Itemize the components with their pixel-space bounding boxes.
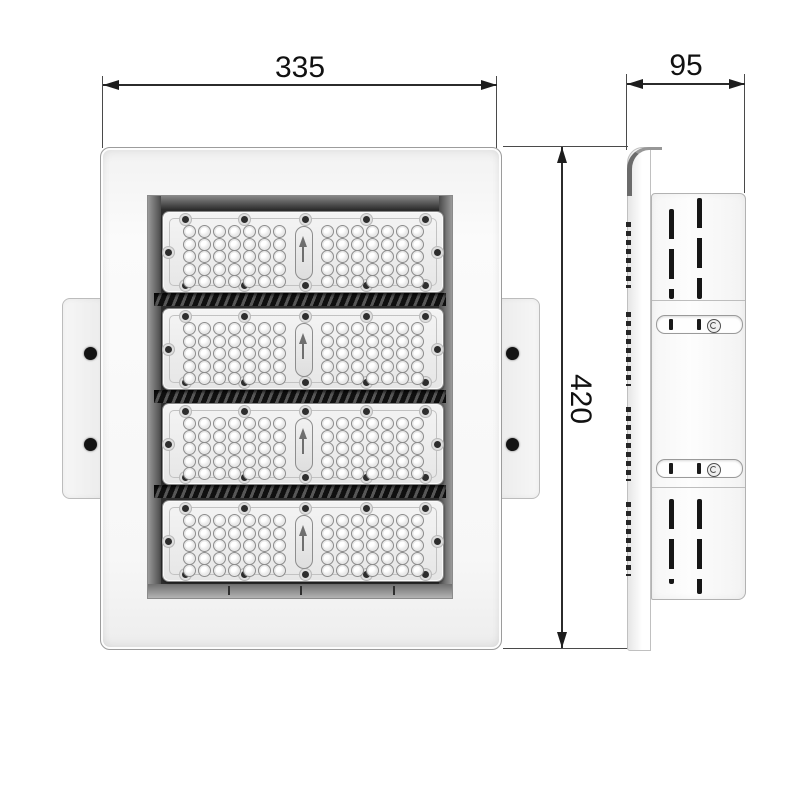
led-lens bbox=[321, 347, 334, 360]
led-lens bbox=[336, 514, 349, 527]
screw-icon bbox=[422, 505, 429, 512]
led-lens bbox=[411, 263, 424, 276]
led-lens bbox=[396, 263, 409, 276]
led-lens bbox=[396, 275, 409, 288]
led-lens bbox=[273, 564, 286, 577]
direction-capsule bbox=[295, 515, 313, 569]
led-lens bbox=[336, 347, 349, 360]
screw-icon bbox=[165, 441, 172, 448]
led-lens bbox=[228, 552, 241, 565]
led-array bbox=[183, 417, 288, 479]
led-lens bbox=[258, 238, 271, 251]
led-lens bbox=[258, 335, 271, 348]
led-lens bbox=[183, 539, 196, 552]
led-lens bbox=[183, 564, 196, 577]
led-lens bbox=[336, 564, 349, 577]
arrow-up-icon bbox=[302, 246, 304, 262]
screw-icon bbox=[422, 408, 429, 415]
led-lens bbox=[258, 552, 271, 565]
led-lens bbox=[213, 539, 226, 552]
side-frame-curve bbox=[627, 147, 662, 196]
extension-line bbox=[744, 74, 745, 193]
screw-icon bbox=[707, 319, 721, 333]
led-lens bbox=[321, 372, 334, 385]
led-lens bbox=[396, 467, 409, 480]
led-lens bbox=[366, 347, 379, 360]
screw-icon bbox=[241, 216, 248, 223]
led-lens bbox=[321, 539, 334, 552]
mount-tab-left bbox=[62, 298, 104, 499]
led-lens bbox=[243, 360, 256, 373]
module-edge-fins bbox=[626, 312, 631, 386]
led-lens bbox=[396, 552, 409, 565]
dimension-front-height-label: 420 bbox=[563, 374, 597, 424]
led-lens bbox=[183, 347, 196, 360]
screw-icon bbox=[182, 313, 189, 320]
direction-capsule bbox=[295, 418, 313, 472]
screw-icon bbox=[363, 505, 370, 512]
led-lens bbox=[273, 250, 286, 263]
led-lens bbox=[366, 564, 379, 577]
led-lens bbox=[198, 238, 211, 251]
led-lens bbox=[198, 322, 211, 335]
led-lens bbox=[183, 263, 196, 276]
led-lens bbox=[321, 360, 334, 373]
led-lens bbox=[213, 322, 226, 335]
led-lens bbox=[273, 322, 286, 335]
led-lens bbox=[258, 430, 271, 443]
led-array bbox=[321, 514, 426, 576]
dimension-front-width-label: 335 bbox=[275, 51, 325, 85]
dimension-line bbox=[627, 83, 745, 85]
led-lens bbox=[351, 564, 364, 577]
led-lens bbox=[258, 275, 271, 288]
mount-hole bbox=[84, 438, 97, 451]
led-lens bbox=[366, 275, 379, 288]
led-lens bbox=[366, 263, 379, 276]
led-lens bbox=[321, 552, 334, 565]
led-lens bbox=[273, 514, 286, 527]
led-lens bbox=[198, 275, 211, 288]
led-lens bbox=[396, 372, 409, 385]
led-lens bbox=[183, 360, 196, 373]
arrow-left-icon bbox=[627, 79, 643, 89]
led-lens bbox=[228, 275, 241, 288]
led-lens bbox=[213, 238, 226, 251]
led-lens bbox=[336, 430, 349, 443]
heatsink-fins bbox=[154, 390, 446, 403]
led-lens bbox=[213, 225, 226, 238]
led-lens bbox=[243, 250, 256, 263]
led-lens bbox=[228, 250, 241, 263]
led-lens bbox=[183, 514, 196, 527]
led-lens bbox=[336, 527, 349, 540]
vent-slot bbox=[669, 209, 674, 299]
led-lens bbox=[213, 564, 226, 577]
led-lens bbox=[258, 527, 271, 540]
mount-hole bbox=[84, 347, 97, 360]
heatsink-fins bbox=[154, 293, 446, 306]
led-lens bbox=[183, 430, 196, 443]
led-lens bbox=[228, 564, 241, 577]
led-lens bbox=[183, 372, 196, 385]
led-lens bbox=[351, 430, 364, 443]
led-lens bbox=[273, 467, 286, 480]
led-lens bbox=[228, 527, 241, 540]
led-array bbox=[183, 322, 288, 384]
led-lens bbox=[396, 539, 409, 552]
led-lens bbox=[258, 467, 271, 480]
led-lens bbox=[198, 250, 211, 263]
led-lens bbox=[381, 455, 394, 468]
led-lens bbox=[243, 467, 256, 480]
led-lens bbox=[273, 335, 286, 348]
led-lens bbox=[243, 275, 256, 288]
led-lens bbox=[273, 372, 286, 385]
led-lens bbox=[396, 564, 409, 577]
led-lens bbox=[213, 263, 226, 276]
led-lens bbox=[366, 455, 379, 468]
led-lens bbox=[366, 335, 379, 348]
led-lens bbox=[321, 527, 334, 540]
led-lens bbox=[243, 322, 256, 335]
led-lens bbox=[183, 527, 196, 540]
led-lens bbox=[243, 417, 256, 430]
led-lens bbox=[321, 238, 334, 251]
led-array bbox=[183, 514, 288, 576]
led-lens bbox=[321, 564, 334, 577]
led-lens bbox=[381, 275, 394, 288]
led-lens bbox=[366, 372, 379, 385]
led-lens bbox=[336, 442, 349, 455]
led-lens bbox=[213, 455, 226, 468]
led-lens bbox=[258, 539, 271, 552]
led-lens bbox=[273, 527, 286, 540]
screw-icon bbox=[182, 408, 189, 415]
led-lens bbox=[381, 564, 394, 577]
led-lens bbox=[321, 335, 334, 348]
led-lens bbox=[183, 467, 196, 480]
led-lens bbox=[366, 527, 379, 540]
slot-dash bbox=[669, 319, 673, 330]
arrow-right-icon bbox=[729, 79, 745, 89]
led-lens bbox=[183, 225, 196, 238]
led-array bbox=[321, 225, 426, 287]
led-lens bbox=[336, 372, 349, 385]
led-lens bbox=[198, 527, 211, 540]
led-lens bbox=[321, 322, 334, 335]
led-lens bbox=[198, 442, 211, 455]
bevel-notch bbox=[228, 586, 230, 595]
led-lens bbox=[243, 539, 256, 552]
led-lens bbox=[273, 275, 286, 288]
led-array bbox=[183, 225, 288, 287]
screw-icon bbox=[302, 313, 309, 320]
led-lens bbox=[273, 417, 286, 430]
led-lens bbox=[381, 250, 394, 263]
led-lens bbox=[396, 527, 409, 540]
vent-slot bbox=[669, 499, 674, 584]
led-lens bbox=[213, 335, 226, 348]
screw-icon bbox=[165, 346, 172, 353]
led-lens bbox=[228, 335, 241, 348]
led-lens bbox=[213, 442, 226, 455]
led-lens bbox=[198, 564, 211, 577]
screw-icon bbox=[707, 463, 721, 477]
led-lens bbox=[351, 539, 364, 552]
led-lens bbox=[336, 263, 349, 276]
led-lens bbox=[381, 225, 394, 238]
led-lens bbox=[351, 527, 364, 540]
led-lens bbox=[381, 263, 394, 276]
led-lens bbox=[411, 564, 424, 577]
led-lens bbox=[198, 417, 211, 430]
arrow-left-icon bbox=[103, 80, 119, 90]
led-lens bbox=[258, 322, 271, 335]
led-lens bbox=[228, 263, 241, 276]
led-lens bbox=[183, 335, 196, 348]
led-lens bbox=[213, 360, 226, 373]
front-frame bbox=[100, 147, 502, 650]
led-lens bbox=[351, 347, 364, 360]
led-lens bbox=[411, 360, 424, 373]
led-lens bbox=[243, 564, 256, 577]
led-lens bbox=[396, 347, 409, 360]
led-lens bbox=[321, 225, 334, 238]
direction-capsule bbox=[295, 323, 313, 377]
housing-seam bbox=[652, 487, 745, 488]
led-lens bbox=[198, 467, 211, 480]
led-lens bbox=[336, 335, 349, 348]
bevel-notch bbox=[393, 586, 395, 595]
led-lens bbox=[336, 552, 349, 565]
led-lens bbox=[321, 275, 334, 288]
led-module bbox=[162, 403, 444, 485]
led-lens bbox=[213, 514, 226, 527]
led-lens bbox=[228, 539, 241, 552]
led-lens bbox=[336, 455, 349, 468]
led-lens bbox=[228, 225, 241, 238]
screw-icon bbox=[165, 249, 172, 256]
mount-hole bbox=[506, 347, 519, 360]
led-lens bbox=[213, 552, 226, 565]
led-lens bbox=[336, 467, 349, 480]
led-array bbox=[321, 322, 426, 384]
led-lens bbox=[396, 430, 409, 443]
led-lens bbox=[258, 564, 271, 577]
led-lens bbox=[411, 527, 424, 540]
led-lens bbox=[351, 250, 364, 263]
led-lens bbox=[396, 238, 409, 251]
led-module bbox=[162, 500, 444, 582]
led-lens bbox=[411, 322, 424, 335]
led-lens bbox=[336, 238, 349, 251]
led-lens bbox=[258, 263, 271, 276]
led-lens bbox=[273, 430, 286, 443]
screw-icon bbox=[363, 216, 370, 223]
screw-icon bbox=[363, 313, 370, 320]
led-lens bbox=[351, 225, 364, 238]
led-lens bbox=[351, 372, 364, 385]
led-lens bbox=[321, 455, 334, 468]
heatsink-fins bbox=[154, 485, 446, 498]
led-lens bbox=[183, 442, 196, 455]
led-lens bbox=[198, 552, 211, 565]
led-lens bbox=[411, 552, 424, 565]
screw-icon bbox=[302, 474, 309, 481]
screw-icon bbox=[241, 408, 248, 415]
screw-icon bbox=[241, 313, 248, 320]
led-lens bbox=[381, 322, 394, 335]
led-lens bbox=[273, 442, 286, 455]
screw-icon bbox=[434, 346, 441, 353]
led-lens bbox=[243, 263, 256, 276]
led-lens bbox=[198, 372, 211, 385]
led-lens bbox=[366, 238, 379, 251]
led-module bbox=[162, 308, 444, 390]
led-lens bbox=[366, 360, 379, 373]
side-housing bbox=[651, 193, 746, 600]
led-lens bbox=[273, 347, 286, 360]
led-lens bbox=[228, 322, 241, 335]
led-lens bbox=[396, 360, 409, 373]
led-lens bbox=[198, 430, 211, 443]
led-lens bbox=[243, 527, 256, 540]
led-lens bbox=[243, 455, 256, 468]
led-lens bbox=[366, 467, 379, 480]
technical-drawing-canvas: 335 95 420 bbox=[0, 0, 800, 800]
led-lens bbox=[411, 514, 424, 527]
arrow-down-icon bbox=[557, 632, 567, 648]
led-lens bbox=[351, 360, 364, 373]
led-lens bbox=[396, 225, 409, 238]
led-lens bbox=[381, 467, 394, 480]
slot-dash bbox=[669, 463, 673, 474]
led-lens bbox=[381, 335, 394, 348]
led-lens bbox=[243, 552, 256, 565]
led-lens bbox=[381, 347, 394, 360]
screw-icon bbox=[302, 216, 309, 223]
module-edge-fins bbox=[626, 407, 631, 481]
led-lens bbox=[183, 455, 196, 468]
led-lens bbox=[258, 347, 271, 360]
led-lens bbox=[243, 442, 256, 455]
led-lens bbox=[366, 552, 379, 565]
led-lens bbox=[366, 225, 379, 238]
screw-icon bbox=[434, 441, 441, 448]
mount-tab-right bbox=[498, 298, 540, 499]
screw-icon bbox=[182, 505, 189, 512]
led-lens bbox=[198, 335, 211, 348]
led-lens bbox=[351, 263, 364, 276]
led-lens bbox=[366, 417, 379, 430]
led-lens bbox=[228, 467, 241, 480]
led-lens bbox=[258, 514, 271, 527]
led-lens bbox=[366, 514, 379, 527]
led-lens bbox=[351, 467, 364, 480]
led-lens bbox=[213, 527, 226, 540]
led-lens bbox=[213, 430, 226, 443]
led-lens bbox=[198, 263, 211, 276]
led-lens bbox=[336, 225, 349, 238]
led-lens bbox=[381, 514, 394, 527]
led-lens bbox=[411, 455, 424, 468]
led-lens bbox=[336, 322, 349, 335]
led-lens bbox=[258, 417, 271, 430]
led-lens bbox=[321, 467, 334, 480]
led-lens bbox=[213, 347, 226, 360]
vent-slot bbox=[697, 198, 702, 299]
led-lens bbox=[273, 360, 286, 373]
arrow-up-icon bbox=[557, 147, 567, 163]
led-lens bbox=[273, 539, 286, 552]
led-lens bbox=[321, 250, 334, 263]
led-lens bbox=[411, 430, 424, 443]
led-lens bbox=[213, 467, 226, 480]
direction-capsule bbox=[295, 226, 313, 280]
led-lens bbox=[243, 225, 256, 238]
led-lens bbox=[183, 250, 196, 263]
led-lens bbox=[243, 430, 256, 443]
led-lens bbox=[396, 250, 409, 263]
screw-icon bbox=[302, 408, 309, 415]
screw-icon bbox=[363, 408, 370, 415]
led-lens bbox=[243, 514, 256, 527]
led-lens bbox=[411, 238, 424, 251]
screw-icon bbox=[241, 505, 248, 512]
led-lens bbox=[228, 442, 241, 455]
led-lens bbox=[366, 250, 379, 263]
led-lens bbox=[228, 514, 241, 527]
led-lens bbox=[351, 417, 364, 430]
led-lens bbox=[213, 372, 226, 385]
screw-icon bbox=[422, 216, 429, 223]
screw-icon bbox=[434, 249, 441, 256]
screw-icon bbox=[302, 571, 309, 578]
led-lens bbox=[228, 455, 241, 468]
arrow-up-icon bbox=[302, 438, 304, 454]
led-lens bbox=[381, 539, 394, 552]
led-lens bbox=[243, 238, 256, 251]
led-lens bbox=[321, 417, 334, 430]
led-lens bbox=[258, 372, 271, 385]
led-lens bbox=[336, 539, 349, 552]
led-lens bbox=[351, 514, 364, 527]
led-lens bbox=[336, 275, 349, 288]
led-lens bbox=[381, 442, 394, 455]
led-lens bbox=[258, 442, 271, 455]
slot-dash bbox=[697, 463, 701, 474]
led-lens bbox=[381, 360, 394, 373]
led-lens bbox=[366, 539, 379, 552]
led-lens bbox=[228, 360, 241, 373]
screw-icon bbox=[434, 538, 441, 545]
bracket-slot bbox=[656, 459, 743, 478]
vent-slot bbox=[697, 499, 702, 594]
led-lens bbox=[411, 467, 424, 480]
led-lens bbox=[381, 372, 394, 385]
led-lens bbox=[366, 322, 379, 335]
led-lens bbox=[351, 552, 364, 565]
screw-icon bbox=[422, 313, 429, 320]
led-lens bbox=[321, 430, 334, 443]
led-lens bbox=[321, 514, 334, 527]
led-lens bbox=[258, 360, 271, 373]
led-lens bbox=[381, 417, 394, 430]
led-lens bbox=[228, 238, 241, 251]
led-lens bbox=[183, 552, 196, 565]
arrow-up-icon bbox=[302, 343, 304, 359]
